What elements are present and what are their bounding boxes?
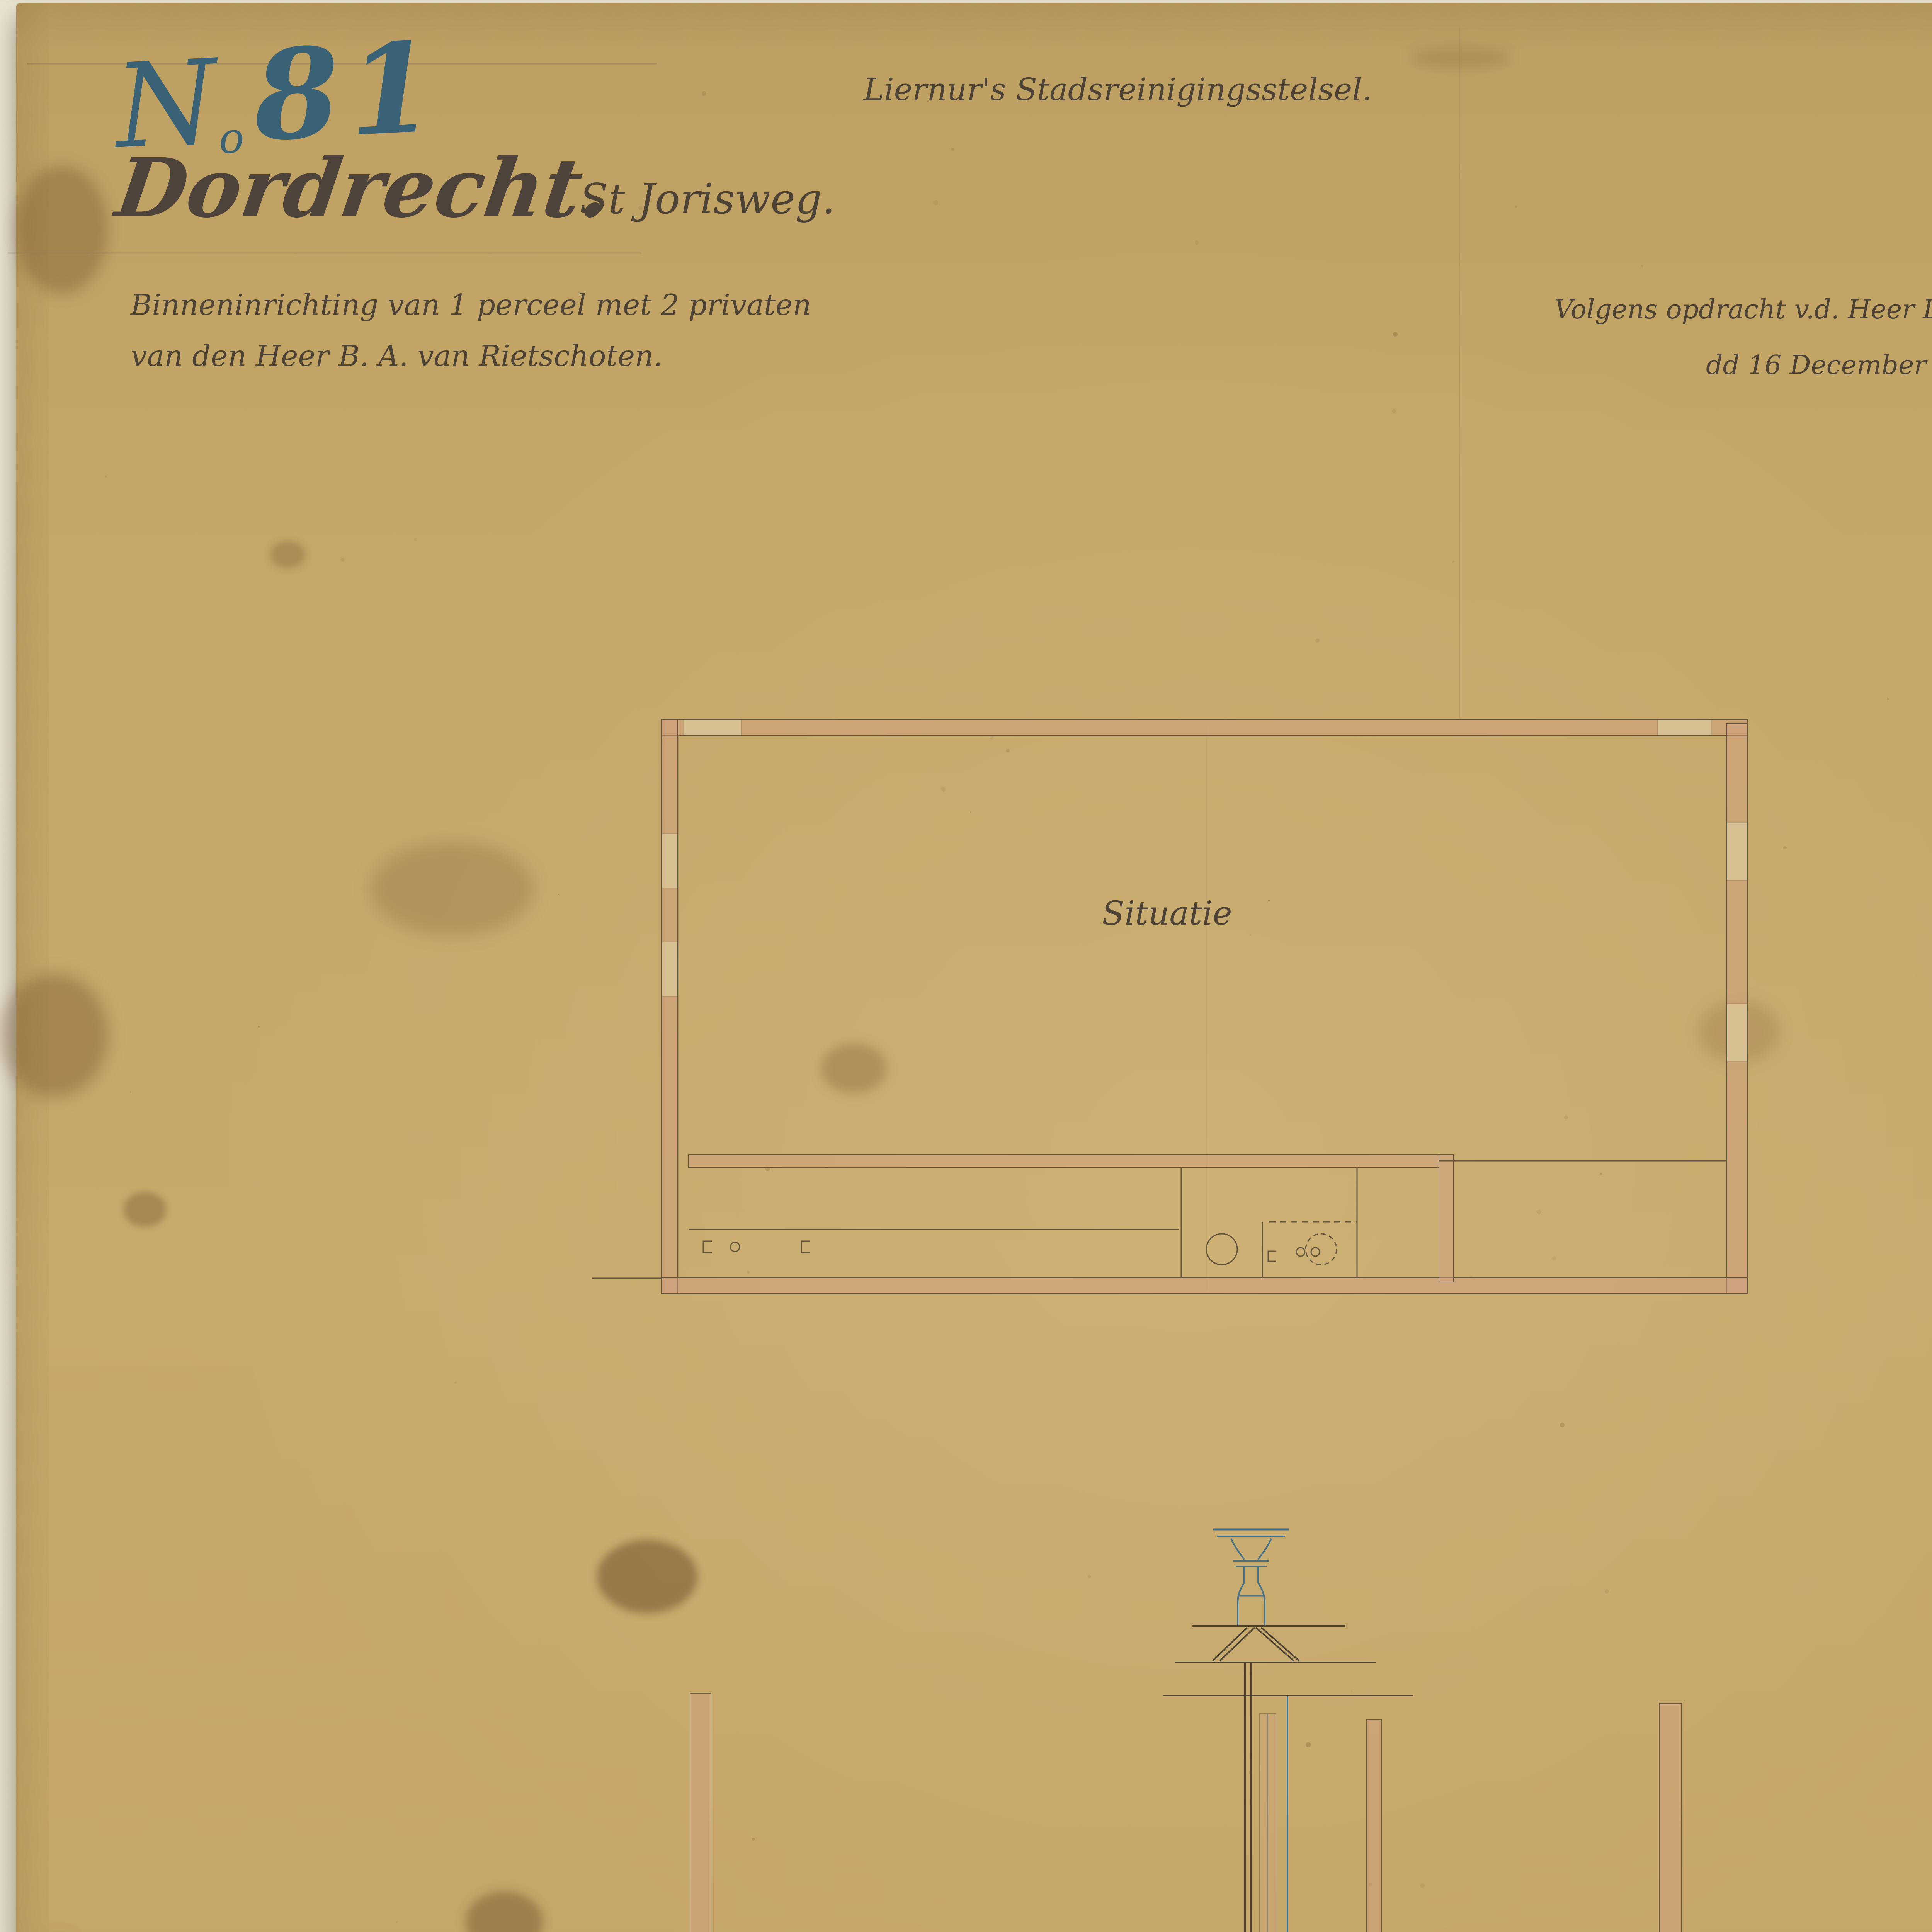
drawing-sheet [16, 3, 1932, 1932]
